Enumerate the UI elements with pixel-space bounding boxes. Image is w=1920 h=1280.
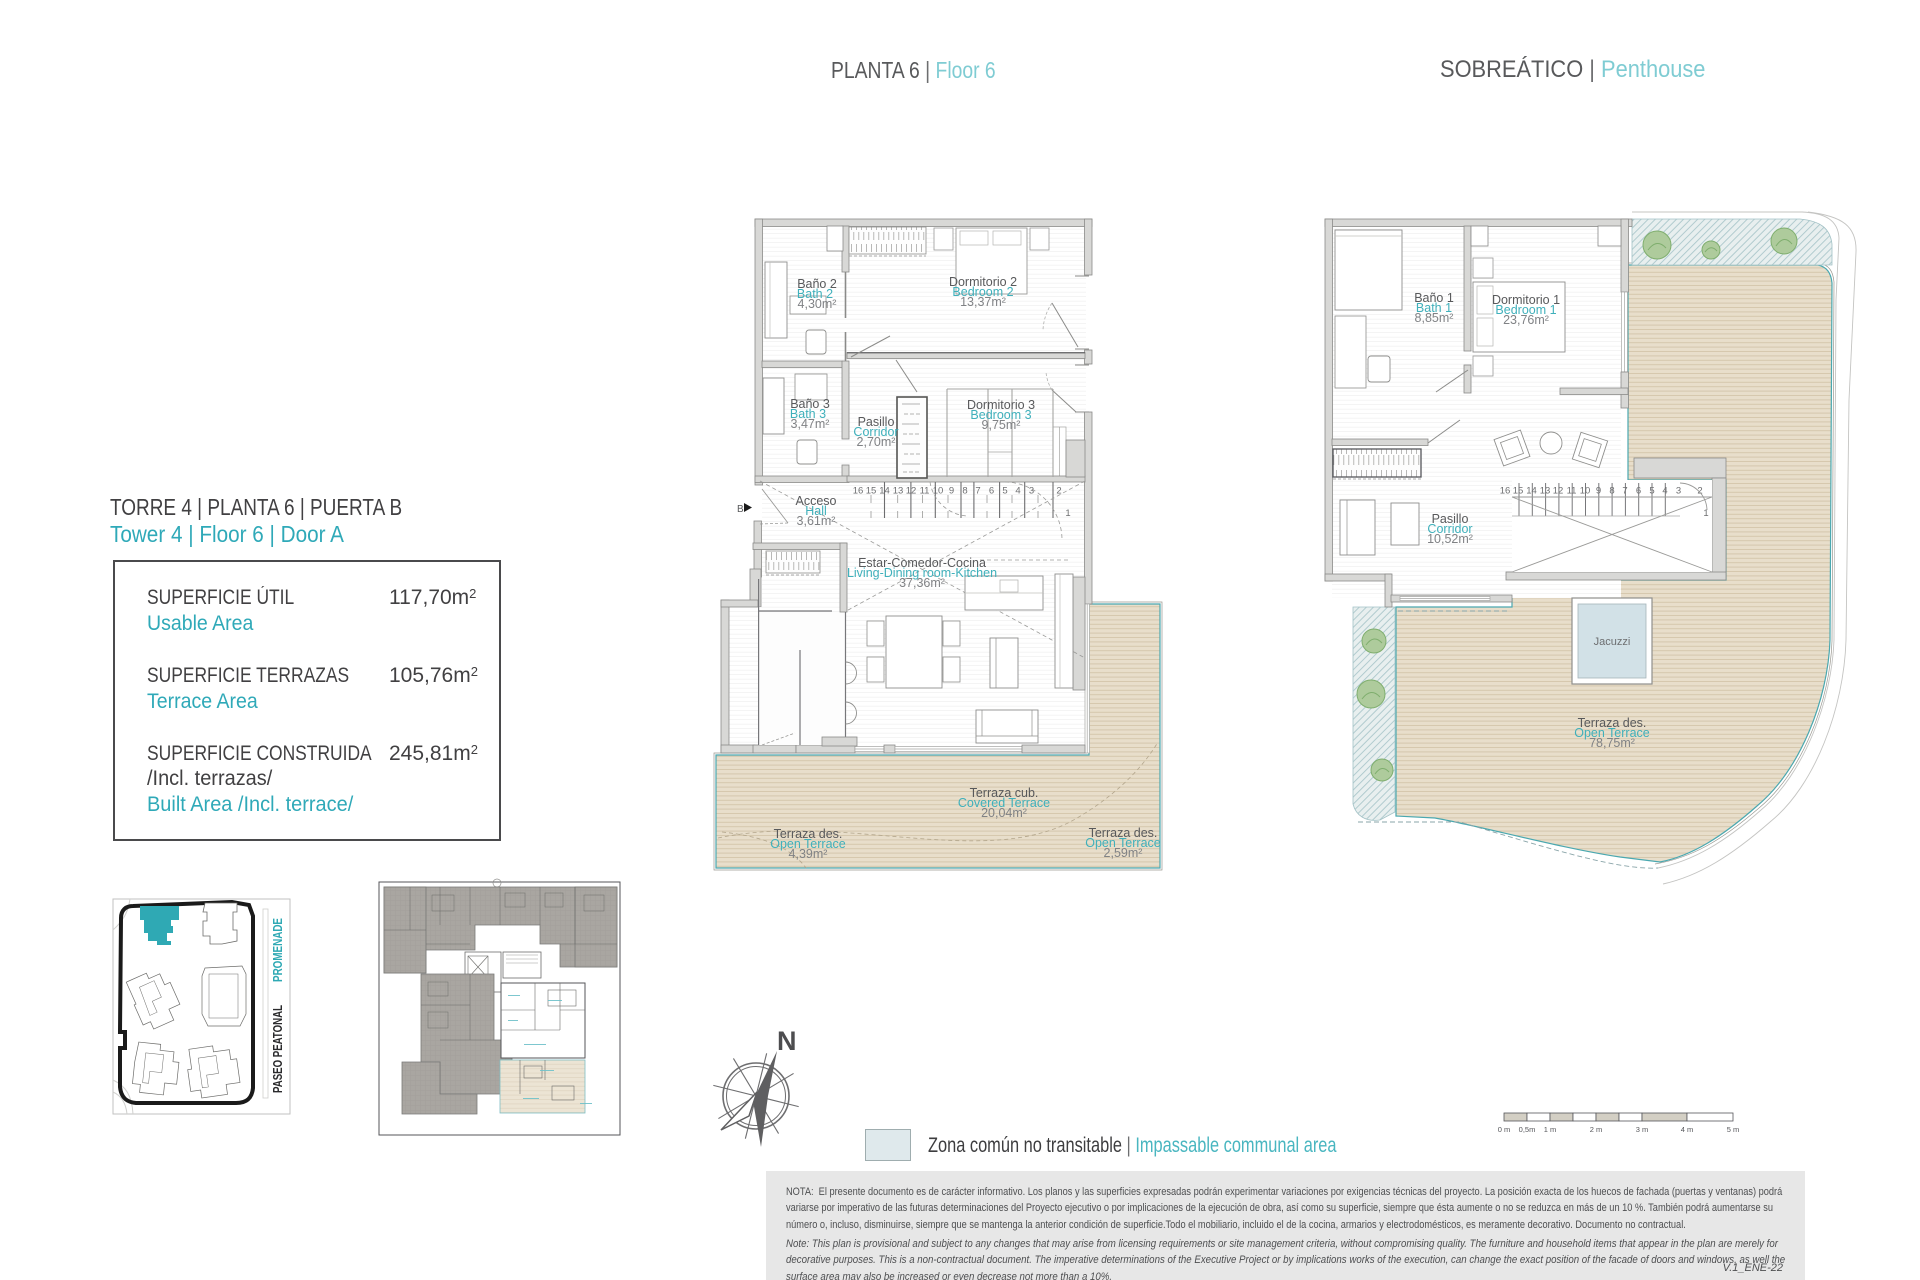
svg-text:37,36m²: 37,36m² xyxy=(899,576,945,590)
svg-text:5: 5 xyxy=(1002,486,1007,497)
svg-text:78,75m²: 78,75m² xyxy=(1589,736,1635,750)
svg-text:4 m: 4 m xyxy=(1681,1125,1694,1134)
svg-text:PROMENADE: PROMENADE xyxy=(270,918,285,982)
svg-text:1 m: 1 m xyxy=(1544,1125,1557,1134)
svg-text:20,04m²: 20,04m² xyxy=(981,806,1027,820)
svg-text:16: 16 xyxy=(1500,486,1511,497)
svg-text:2,59m²: 2,59m² xyxy=(1104,846,1143,860)
svg-text:3,61m²: 3,61m² xyxy=(797,514,836,528)
svg-text:5 m: 5 m xyxy=(1727,1125,1740,1134)
svg-text:14: 14 xyxy=(879,486,890,497)
svg-text:1: 1 xyxy=(1065,508,1070,519)
svg-text:8,85m²: 8,85m² xyxy=(1415,311,1454,325)
svg-text:10: 10 xyxy=(933,486,944,497)
svg-text:4,39m²: 4,39m² xyxy=(789,847,828,861)
svg-text:12: 12 xyxy=(1553,486,1564,497)
svg-text:Jacuzzi: Jacuzzi xyxy=(1594,636,1631,648)
svg-text:1: 1 xyxy=(1703,508,1708,519)
svg-text:4: 4 xyxy=(1662,486,1667,497)
svg-text:13: 13 xyxy=(893,486,904,497)
svg-text:4,30m²: 4,30m² xyxy=(798,297,837,311)
svg-text:0 m: 0 m xyxy=(1498,1125,1511,1134)
svg-text:PASEO PEATONAL: PASEO PEATONAL xyxy=(270,1005,285,1093)
svg-text:11: 11 xyxy=(920,486,930,497)
svg-text:2,70m²: 2,70m² xyxy=(857,435,896,449)
svg-text:8: 8 xyxy=(1609,486,1614,497)
svg-text:10,52m²: 10,52m² xyxy=(1427,532,1473,546)
svg-text:15: 15 xyxy=(1513,486,1524,497)
svg-text:B: B xyxy=(737,504,744,515)
svg-text:12: 12 xyxy=(906,486,917,497)
svg-text:9: 9 xyxy=(1596,486,1601,497)
svg-text:3: 3 xyxy=(1676,486,1681,497)
svg-text:3: 3 xyxy=(1029,486,1034,497)
svg-text:5: 5 xyxy=(1649,486,1654,497)
svg-text:13,37m²: 13,37m² xyxy=(960,295,1006,309)
svg-text:4: 4 xyxy=(1015,486,1020,497)
svg-text:7: 7 xyxy=(1622,486,1627,497)
svg-text:13: 13 xyxy=(1540,486,1551,497)
svg-text:23,76m²: 23,76m² xyxy=(1503,313,1549,327)
svg-text:14: 14 xyxy=(1526,486,1537,497)
svg-text:6: 6 xyxy=(989,486,994,497)
svg-text:N: N xyxy=(777,1026,797,1056)
svg-text:3 m: 3 m xyxy=(1636,1125,1649,1134)
svg-text:3,47m²: 3,47m² xyxy=(791,417,830,431)
svg-text:11: 11 xyxy=(1567,486,1577,497)
svg-text:16: 16 xyxy=(853,486,864,497)
svg-text:7: 7 xyxy=(975,486,980,497)
svg-text:9,75m²: 9,75m² xyxy=(982,418,1021,432)
svg-text:9: 9 xyxy=(949,486,954,497)
svg-text:15: 15 xyxy=(866,486,877,497)
svg-text:2 m: 2 m xyxy=(1590,1125,1603,1134)
svg-text:8: 8 xyxy=(962,486,967,497)
svg-text:10: 10 xyxy=(1580,486,1591,497)
svg-text:6: 6 xyxy=(1636,486,1641,497)
svg-text:0,5m: 0,5m xyxy=(1519,1125,1536,1134)
